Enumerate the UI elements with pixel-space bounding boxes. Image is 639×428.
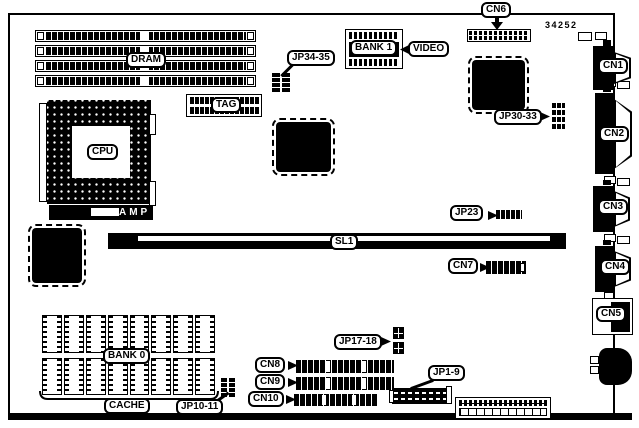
callout-cn3: CN3 — [598, 199, 628, 215]
header-gap — [362, 361, 366, 372]
cn8-header — [296, 360, 394, 373]
callout-cache: CACHE — [104, 398, 150, 414]
qfp-chip — [276, 122, 331, 172]
callout-tag: TAG — [211, 97, 241, 113]
io-bracket-tab — [595, 32, 607, 40]
simm-clip — [37, 32, 44, 40]
callout-jp34-35: JP34-35 — [287, 50, 335, 66]
io-bracket-tab — [617, 236, 630, 244]
callout-cn2: CN2 — [599, 126, 629, 142]
jumper-jp17 — [393, 327, 404, 339]
callout-jp30-33: JP30-33 — [494, 109, 542, 125]
simm-clip — [247, 62, 254, 70]
cache-chip — [151, 315, 171, 353]
simm-clip — [247, 32, 254, 40]
qfp-chip — [32, 228, 82, 283]
callout-jp10-11: JP10-11 — [176, 399, 223, 415]
simm-slot — [35, 75, 256, 87]
pin-row — [349, 59, 399, 66]
pin-row — [469, 31, 529, 35]
simm-clip — [247, 77, 254, 85]
jumper-jp32 — [552, 117, 565, 122]
callout-bank1: BANK 1 — [350, 40, 397, 56]
din-pin — [590, 366, 599, 374]
cache-chip — [108, 315, 128, 353]
simm-clip — [37, 77, 44, 85]
callout-cn5: CN5 — [596, 306, 626, 322]
callout-bank0: BANK 0 — [103, 348, 150, 364]
header-gap — [362, 378, 366, 389]
din-connector — [599, 348, 632, 385]
simm-clip — [37, 47, 44, 55]
part-number: 34252 — [545, 20, 578, 30]
simm-clip — [37, 62, 44, 70]
cache-chip — [86, 315, 106, 353]
io-bracket-tab — [617, 178, 630, 186]
edge-stub — [603, 180, 611, 185]
amp-bar-window — [91, 208, 119, 216]
motherboard-diagram: 34252 DRAM JP34-35 BANK 1 VIDEO CN6 TAG … — [0, 0, 639, 428]
header-end-cap — [520, 263, 525, 272]
jumper-jp31 — [552, 110, 565, 115]
callout-cn10: CN10 — [248, 391, 284, 407]
din-pin — [590, 356, 599, 364]
jumper-block-cap — [389, 390, 394, 403]
edge-stub — [603, 240, 611, 245]
power-pin-row — [459, 400, 547, 406]
callout-cpu: CPU — [87, 144, 118, 160]
jumper-block-cap — [446, 386, 452, 404]
power-cell-row — [459, 408, 547, 416]
header-gap — [352, 395, 356, 405]
header-gap — [322, 395, 326, 405]
cn7-header — [486, 261, 526, 274]
simm-key-gap — [140, 31, 149, 41]
cn9-header — [296, 377, 394, 390]
header-gap — [326, 378, 330, 389]
callout-cn7: CN7 — [448, 258, 478, 274]
jumper-jp33 — [552, 124, 565, 129]
callout-cn6: CN6 — [481, 2, 511, 18]
jumper-jp30 — [552, 103, 565, 108]
amp-brand-text: AMP — [119, 207, 150, 218]
callout-jp1-9: JP1-9 — [428, 365, 465, 381]
socket-tab — [149, 181, 156, 206]
jumper-jp34 — [272, 72, 280, 92]
callout-jp17-18: JP17-18 — [334, 334, 382, 350]
cache-chip — [64, 315, 84, 353]
cache-chip — [130, 315, 150, 353]
callout-dram: DRAM — [126, 52, 166, 68]
jumper-jp11 — [229, 377, 235, 397]
callout-video: VIDEO — [408, 41, 449, 57]
jumper-jp18 — [393, 342, 404, 354]
callout-cn1: CN1 — [598, 58, 628, 74]
io-bracket-tab — [578, 32, 592, 41]
qfp-chip — [472, 60, 525, 110]
cache-chip — [195, 315, 215, 353]
callout-cn8: CN8 — [255, 357, 285, 373]
callout-cn4: CN4 — [600, 259, 630, 275]
simm-key-gap — [140, 76, 149, 86]
pin-row — [349, 32, 399, 39]
simm-slot — [35, 30, 256, 42]
cache-chip — [42, 315, 62, 353]
callout-jp23: JP23 — [450, 205, 483, 221]
callout-cn9: CN9 — [255, 374, 285, 390]
zif-lever — [39, 103, 47, 202]
cn10-header — [294, 394, 378, 406]
simm-clip — [247, 47, 254, 55]
callout-sl1: SL1 — [330, 234, 358, 250]
callout-arrow — [491, 22, 503, 30]
jumper-jp23 — [496, 210, 522, 219]
pin-row — [469, 36, 529, 40]
header-gap — [326, 361, 330, 372]
jumper-block-jp1-9 — [392, 388, 450, 404]
cache-chip — [173, 315, 193, 353]
socket-tab — [149, 114, 156, 135]
